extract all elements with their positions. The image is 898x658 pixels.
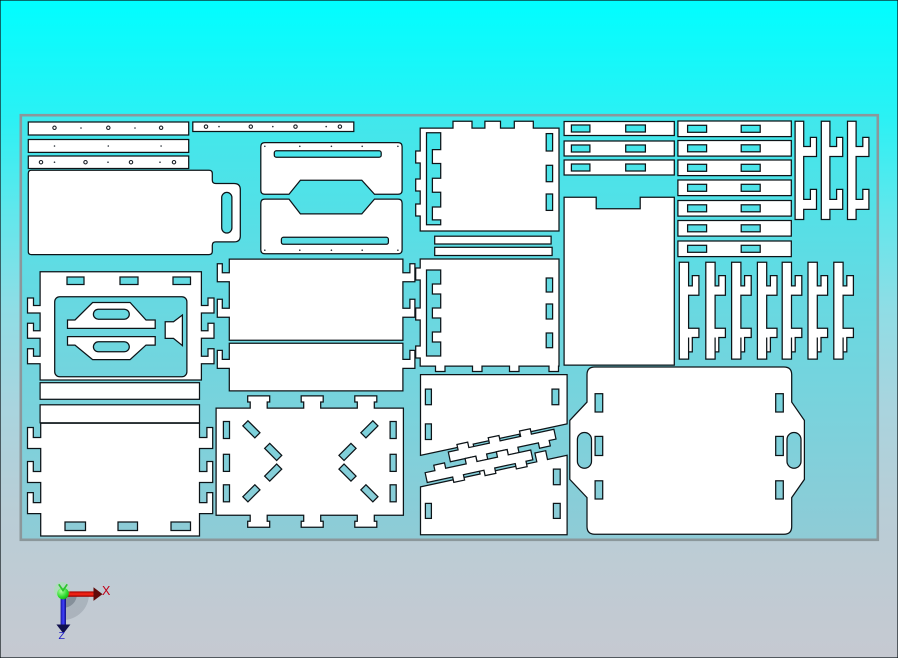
svg-text:Z: Z xyxy=(59,630,66,642)
svg-text:X: X xyxy=(102,584,111,598)
